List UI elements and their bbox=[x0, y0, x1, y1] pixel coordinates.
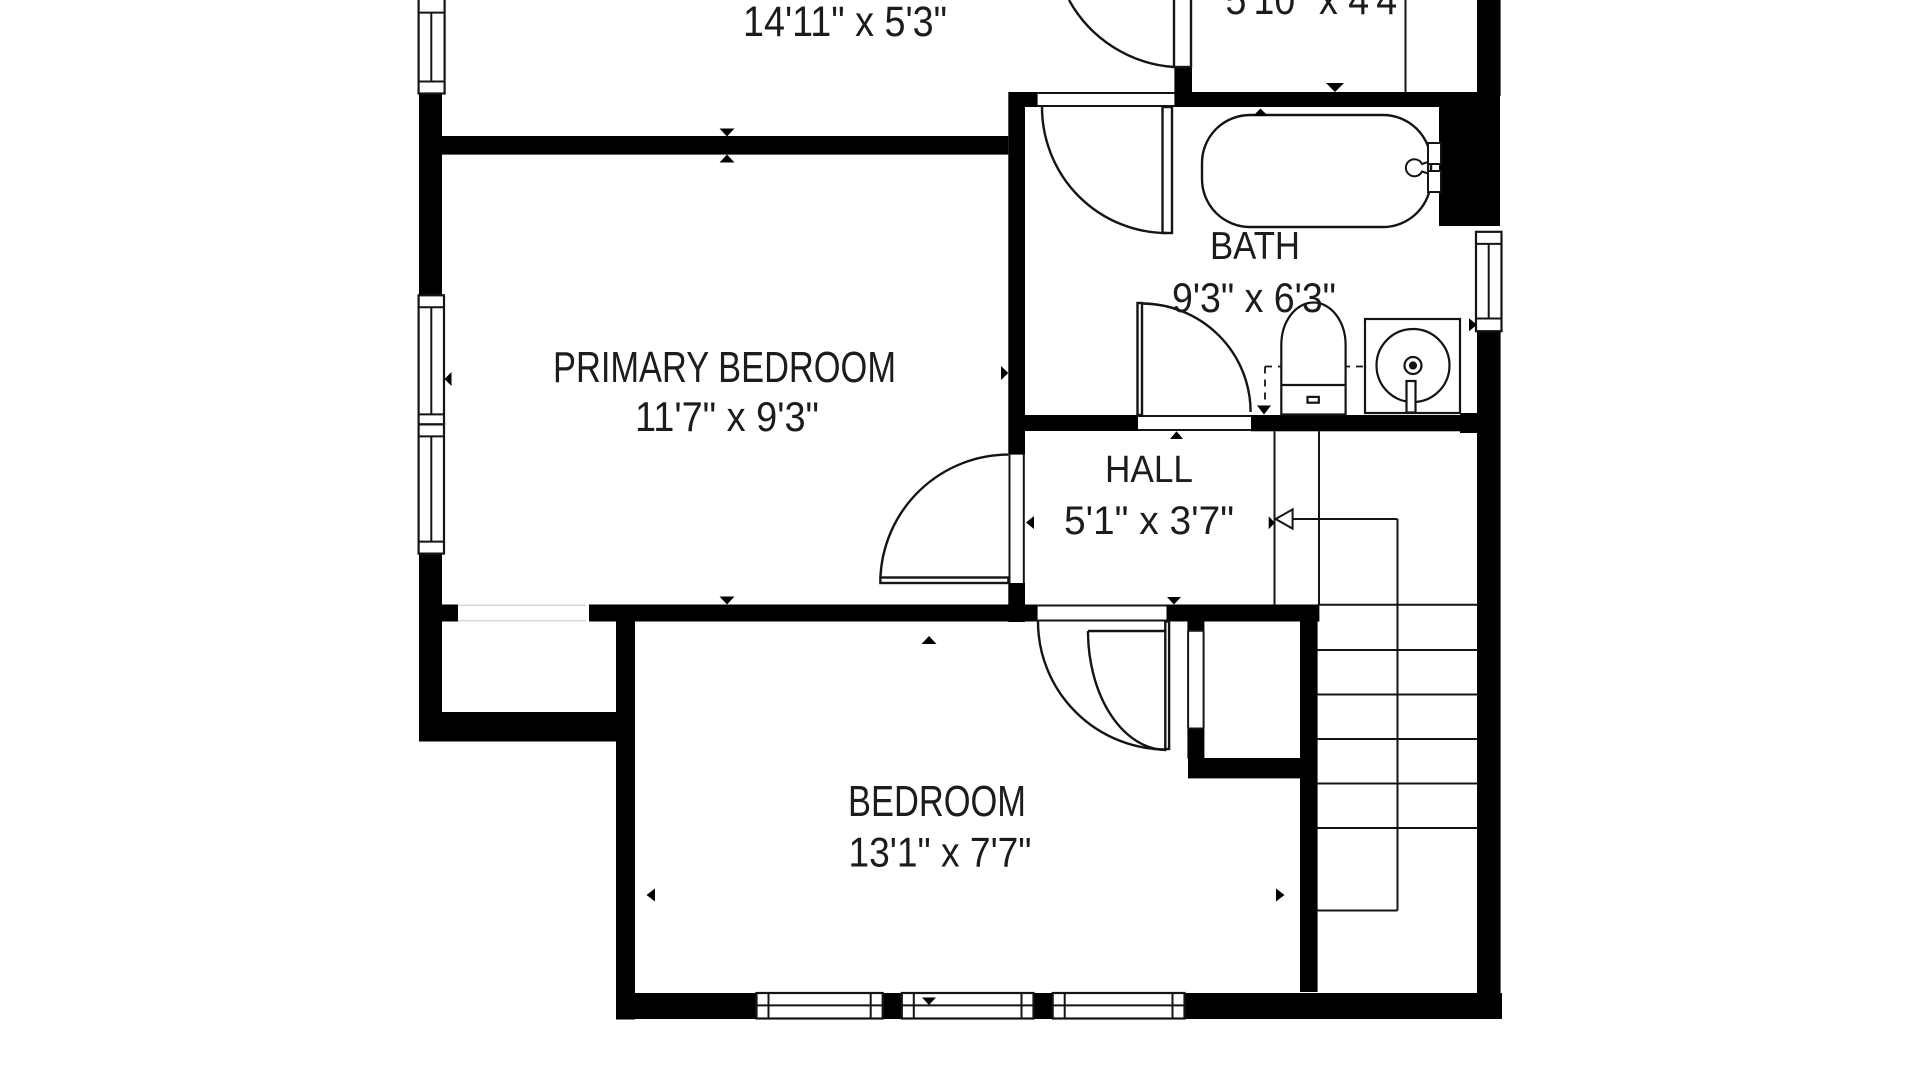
svg-text:BEDROOM: BEDROOM bbox=[848, 777, 1026, 826]
svg-text:BATH: BATH bbox=[1210, 225, 1300, 268]
svg-text:13'1" x 7'7": 13'1" x 7'7" bbox=[849, 829, 1032, 876]
svg-text:5'10" x 4'4": 5'10" x 4'4" bbox=[1226, 0, 1411, 24]
svg-text:9'3" x 6'3": 9'3" x 6'3" bbox=[1172, 274, 1336, 321]
svg-text:5'1" x 3'7": 5'1" x 3'7" bbox=[1064, 499, 1234, 543]
svg-text:PRIMARY BEDROOM: PRIMARY BEDROOM bbox=[553, 343, 896, 392]
svg-text:HALL: HALL bbox=[1105, 449, 1193, 491]
svg-text:11'7" x 9'3": 11'7" x 9'3" bbox=[635, 393, 819, 440]
svg-text:14'11" x 5'3": 14'11" x 5'3" bbox=[743, 0, 947, 46]
